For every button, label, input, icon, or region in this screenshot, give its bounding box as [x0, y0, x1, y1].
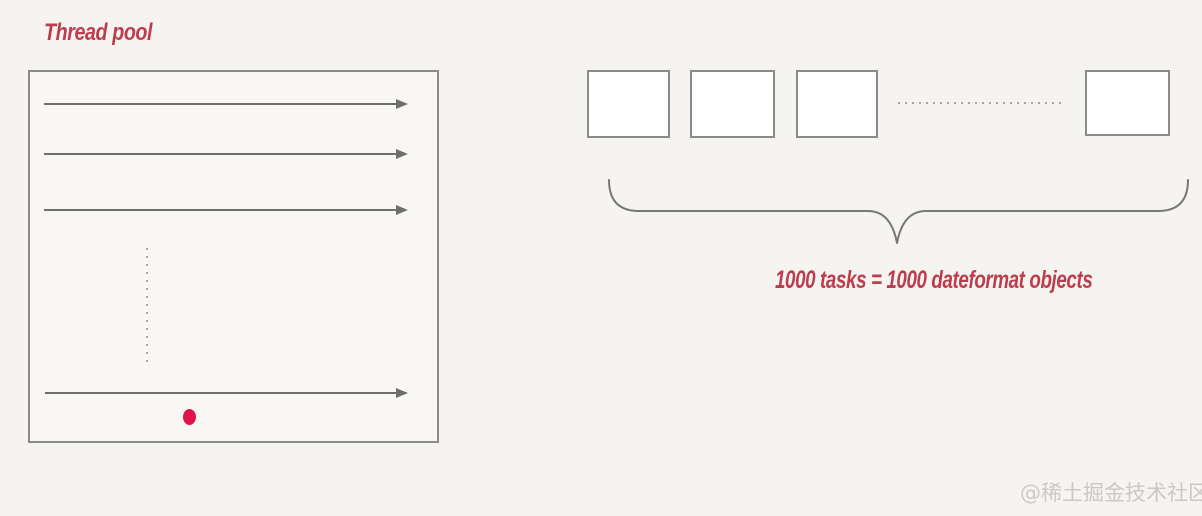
task-box [587, 70, 670, 138]
tasks-caption: 1000 tasks = 1000 dateformat objects [775, 266, 1092, 295]
horizontal-ellipsis-dots-icon [898, 102, 1062, 104]
thread-pool-title: Thread pool [44, 19, 152, 47]
thread-arrow-icon [44, 103, 396, 105]
thread-arrow-icon [44, 153, 396, 155]
thread-pool-box [28, 70, 439, 443]
red-task-dot-icon [183, 409, 196, 425]
thread-arrow-icon [44, 209, 396, 211]
vertical-ellipsis-dots-icon [146, 248, 148, 362]
thread-arrow-icon [45, 392, 396, 394]
task-box [796, 70, 878, 138]
diagram-canvas: Thread pool 1000 tasks = 1000 dateformat… [0, 0, 1202, 516]
task-box [690, 70, 775, 138]
brace-icon [598, 174, 1198, 252]
task-box [1085, 70, 1170, 136]
watermark: @稀土掘金技术社区 [1020, 477, 1202, 507]
